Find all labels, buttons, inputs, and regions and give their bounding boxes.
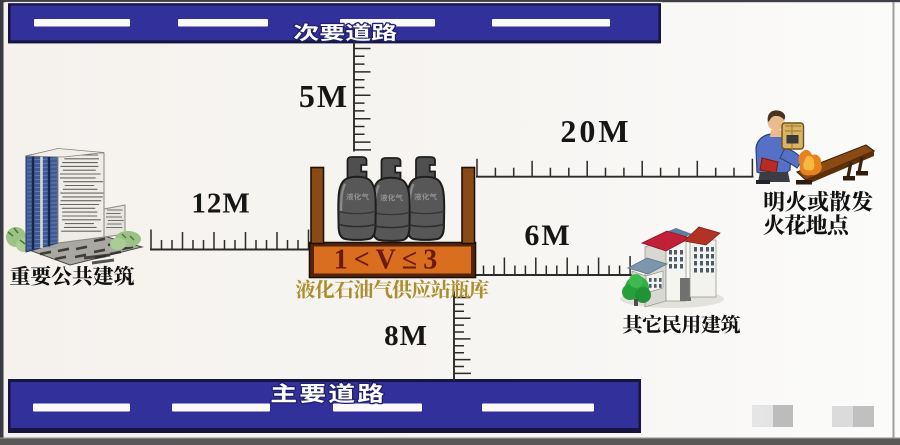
svg-text:8M: 8M [384, 320, 428, 352]
svg-text:5M: 5M [299, 78, 349, 114]
svg-text:6M: 6M [524, 219, 571, 252]
svg-text:1<V≤3: 1<V≤3 [334, 245, 444, 276]
svg-text:20M: 20M [560, 113, 631, 149]
svg-text:12M: 12M [191, 188, 250, 220]
